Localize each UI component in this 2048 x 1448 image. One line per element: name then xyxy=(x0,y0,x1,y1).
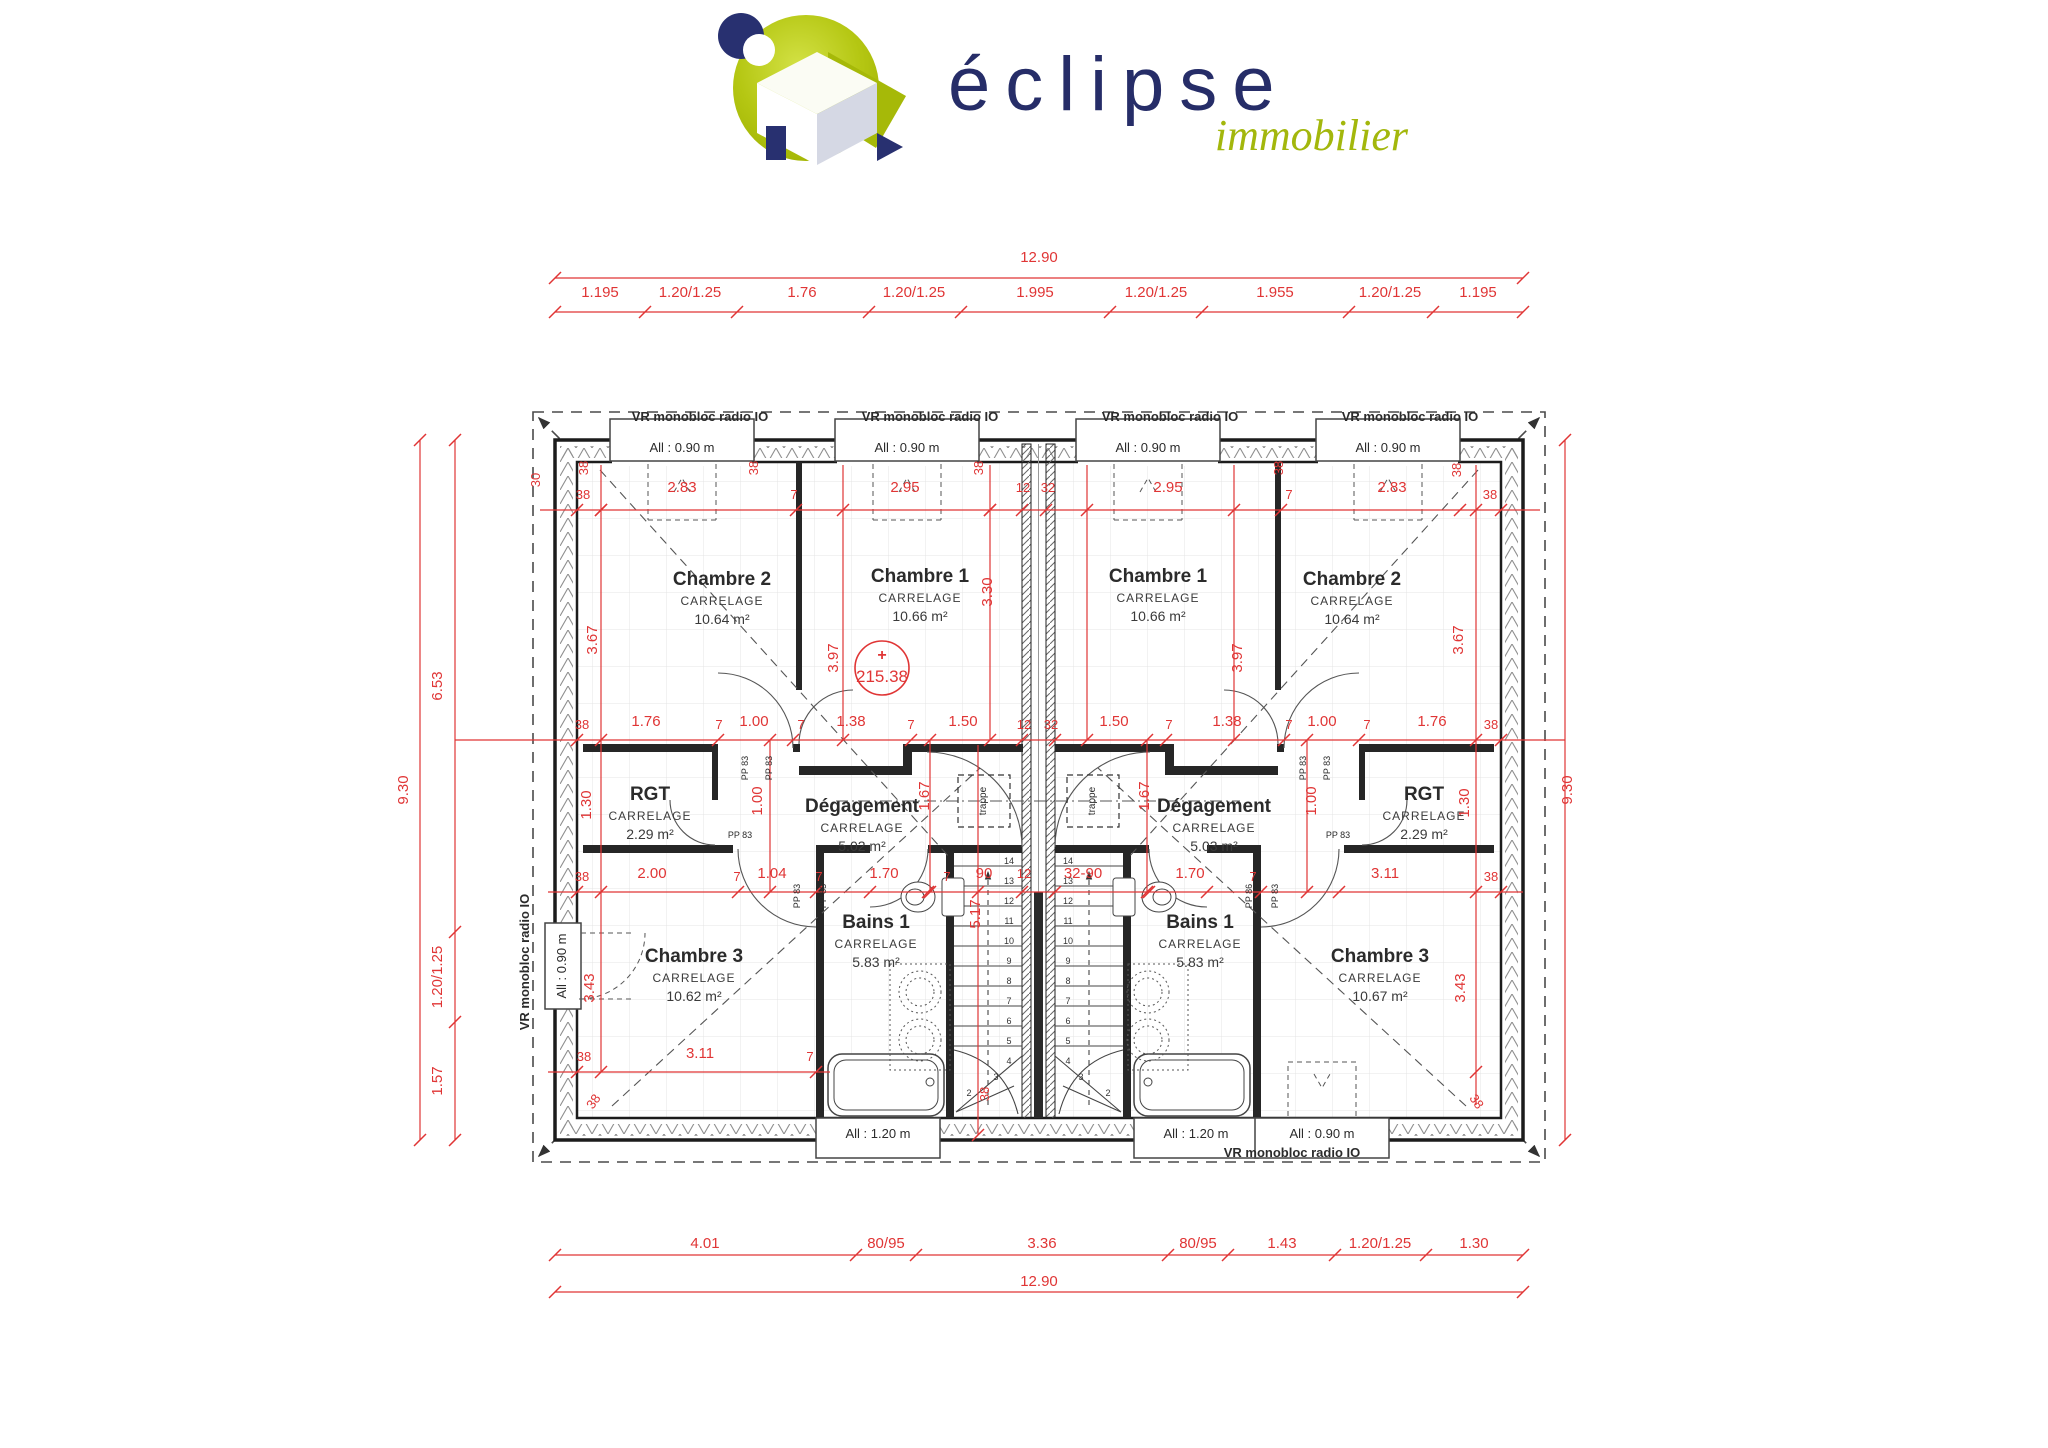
bathtub-icon xyxy=(828,1054,944,1116)
stair-step-number: 9 xyxy=(1006,956,1011,966)
room-finish: CARRELAGE xyxy=(1338,971,1421,985)
dimension-label: 3.67 xyxy=(1450,625,1467,654)
stair-step-number: 8 xyxy=(1065,976,1070,986)
window-height-label: All : 1.20 m xyxy=(845,1126,910,1141)
dimension-label: 38 xyxy=(1484,717,1498,732)
dimension-label: 3.36 xyxy=(1027,1235,1056,1252)
stair-step-number: 13 xyxy=(1063,876,1073,886)
dimension-label: 7 xyxy=(1165,717,1172,732)
stair-step-number: 9 xyxy=(1065,956,1070,966)
room-name: Bains 1 xyxy=(1166,912,1234,933)
dimension-label: 38 xyxy=(1271,461,1286,475)
stair-step-number: 4 xyxy=(1065,1056,1070,1066)
room-name: Chambre 2 xyxy=(673,569,771,590)
room-area: 10.66 m² xyxy=(892,608,948,624)
room-name: Chambre 1 xyxy=(1109,566,1208,587)
dimension-label: 12 xyxy=(1017,717,1031,732)
dimension-label: 3.30 xyxy=(979,577,996,606)
dimension-label: 3.43 xyxy=(581,973,598,1002)
room-finish: CARRELAGE xyxy=(1116,591,1199,605)
dimension-label: 2.83 xyxy=(667,479,696,496)
dimension-label: 1.43 xyxy=(1267,1235,1296,1252)
shutter-label: VR monobloc radio IO xyxy=(1224,1145,1361,1160)
dimension-label: 38 xyxy=(1484,869,1498,884)
dimension-label: 1.50 xyxy=(948,713,977,730)
dimension-label: 12 xyxy=(1016,480,1030,495)
dimension-label: 1.38 xyxy=(1212,713,1241,730)
dimension-label: 1.30 xyxy=(578,790,595,819)
hatch-label: trappe xyxy=(1087,786,1098,815)
dimension-label: 3.67 xyxy=(584,625,601,654)
dimension-label: 1.20/1.25 xyxy=(659,284,722,301)
dimension-label: 1.20/1.25 xyxy=(883,284,946,301)
floor-plan-page: éclipse immobilier xyxy=(0,0,2048,1448)
dimension-label: 38 xyxy=(1449,463,1464,477)
dimension-label: 7 xyxy=(1285,717,1292,732)
dimension-label: 30 xyxy=(528,473,543,487)
shutter-label: VR monobloc radio IO xyxy=(632,409,769,424)
door-label: PP 83 xyxy=(764,756,774,780)
stair-step-number: 10 xyxy=(1004,936,1014,946)
dimension-label: 7 xyxy=(1363,717,1370,732)
dimension-label: 32 xyxy=(1041,480,1055,495)
dimension-label: 1.20/1.25 xyxy=(1125,284,1188,301)
stair-step-number: 11 xyxy=(1004,916,1013,926)
dimension-label: 38 xyxy=(575,869,589,884)
door-label: PP 83 xyxy=(1298,756,1308,780)
logo-ball-highlight xyxy=(743,34,775,66)
room-name: Chambre 2 xyxy=(1303,569,1401,590)
door-label: PP 83 xyxy=(740,756,750,780)
dimension-label: 38 xyxy=(1483,487,1497,502)
level-marker-plus: + xyxy=(877,647,886,664)
dimension-label: 1.20/1.25 xyxy=(1349,1235,1412,1252)
stair-step-number: 3 xyxy=(993,1072,998,1082)
door-label: PP 83 xyxy=(1326,830,1350,840)
room-area: 5.02 m² xyxy=(838,838,886,854)
dimension-label: 7 xyxy=(907,717,914,732)
dimension-label: 80/95 xyxy=(1179,1235,1217,1252)
stair-step-number: 6 xyxy=(1006,1016,1011,1026)
room-finish: CARRELAGE xyxy=(820,821,903,835)
room-finish: CARRELAGE xyxy=(1172,821,1255,835)
room-area: 10.64 m² xyxy=(694,611,750,627)
stair-step-number: 10 xyxy=(1063,936,1073,946)
stair-step-number: 14 xyxy=(1063,856,1073,866)
dimension-label: 3.11 xyxy=(1371,865,1399,882)
level-marker-value: 215.38 xyxy=(856,667,908,686)
dimension-label: 7 xyxy=(733,869,740,884)
stair-step-number: 14 xyxy=(1004,856,1014,866)
window-height-label: All : 1.20 m xyxy=(1163,1126,1228,1141)
room-area: 10.67 m² xyxy=(1352,988,1408,1004)
logo: éclipse immobilier xyxy=(718,13,1409,165)
shutter-label: VR monobloc radio IO xyxy=(1102,409,1239,424)
dimension-label: 7 xyxy=(1285,487,1292,502)
dimension-label: 1.04 xyxy=(757,865,786,882)
dimension-label: 7 xyxy=(1249,869,1256,884)
dimension-label: 3.97 xyxy=(1229,643,1246,672)
dimension-label: 1.70 xyxy=(869,865,898,882)
dimension-label: 1.76 xyxy=(787,284,816,301)
window-height-label: All : 0.90 m xyxy=(649,440,714,455)
dimension-label: 7 xyxy=(815,869,822,884)
dimension-label: 2.00 xyxy=(637,865,666,882)
dimension-label: 1.76 xyxy=(631,713,660,730)
dimension-label: 38 xyxy=(977,1087,992,1101)
dimension-label: 1.00 xyxy=(1303,786,1320,815)
dimension-label: 1.57 xyxy=(429,1066,446,1095)
stair-step-number: 3 xyxy=(1078,1072,1083,1082)
dimension-label: 38 xyxy=(577,1049,591,1064)
dimension-label: 4.01 xyxy=(690,1235,719,1252)
room-area: 10.62 m² xyxy=(666,988,722,1004)
dimension-label: 1.20/1.25 xyxy=(1359,284,1422,301)
dimension-label: 32 xyxy=(1044,717,1058,732)
dimension-label: 1.76 xyxy=(1417,713,1446,730)
room-name: Dégagement xyxy=(1157,796,1272,817)
dimension-label: 2.83 xyxy=(1377,479,1406,496)
door-label: PP 83 xyxy=(728,830,752,840)
room-area: 5.03 m² xyxy=(1190,838,1238,854)
dimension-label: 80/95 xyxy=(867,1235,905,1252)
stair-step-number: 5 xyxy=(1006,1036,1011,1046)
stair-step-number: 6 xyxy=(1065,1016,1070,1026)
dimension-label: 9.30 xyxy=(1559,775,1576,804)
dimension-label: 38 xyxy=(746,461,761,475)
dimension-label: 7 xyxy=(790,487,797,502)
dimension-label: 38 xyxy=(576,487,590,502)
stair-step-number: 7 xyxy=(1065,996,1070,1006)
window-height-label: All : 0.90 m xyxy=(874,440,939,455)
room-area: 2.29 m² xyxy=(626,826,674,842)
room-finish: CARRELAGE xyxy=(1158,937,1241,951)
room-area: 5.83 m² xyxy=(1176,954,1224,970)
door-label: PP 86 xyxy=(1244,884,1254,908)
dimension-label: 1.195 xyxy=(1459,284,1497,301)
room-name: RGT xyxy=(1404,784,1445,805)
dimension-label: 1.50 xyxy=(1099,713,1128,730)
brand-tagline: immobilier xyxy=(1215,111,1409,160)
door-label: PP 83 xyxy=(1270,884,1280,908)
floor-plan-drawing: éclipse immobilier xyxy=(0,0,2048,1448)
dimension-label: 12.90 xyxy=(1020,249,1058,266)
room-name: Dégagement xyxy=(805,796,920,817)
dimension-label: 1.00 xyxy=(749,786,766,815)
dimension-label: 6.53 xyxy=(429,671,446,700)
dimension-label: 7 xyxy=(797,717,804,732)
room-name: Chambre 3 xyxy=(645,946,743,967)
dimension-label: 1.67 xyxy=(1136,781,1153,810)
dimension-label: 1.00 xyxy=(739,713,768,730)
dimension-label: 2.95 xyxy=(890,479,919,496)
shutter-label: VR monobloc radio IO xyxy=(1342,409,1479,424)
stair-step-number: 11 xyxy=(1063,916,1072,926)
stair-step-number: 7 xyxy=(1006,996,1011,1006)
dimension-label: 7 xyxy=(806,1049,813,1064)
door-label: PP 83 xyxy=(818,884,828,908)
dimension-label: 9.30 xyxy=(395,775,412,804)
door-label: PP 83 xyxy=(792,884,802,908)
window-height-label: All : 0.90 m xyxy=(1115,440,1180,455)
dimension-label: 1.70 xyxy=(1175,865,1204,882)
room-area: 2.29 m² xyxy=(1400,826,1448,842)
window-height-label: All : 0.90 m xyxy=(1355,440,1420,455)
shutter-label: VR monobloc radio IO xyxy=(517,894,532,1031)
dimension-label: 2.95 xyxy=(1153,479,1182,496)
dimension-label: 38 xyxy=(576,461,591,475)
stair-step-number: 8 xyxy=(1006,976,1011,986)
room-name: RGT xyxy=(630,784,671,805)
dimension-label: 1.995 xyxy=(1016,284,1054,301)
stair-step-number: 13 xyxy=(1004,876,1014,886)
dimension-label: 1.38 xyxy=(836,713,865,730)
room-name: Bains 1 xyxy=(842,912,910,933)
room-area: 5.83 m² xyxy=(852,954,900,970)
room-finish: CARRELAGE xyxy=(608,809,691,823)
bathtub-icon xyxy=(1134,1054,1250,1116)
room-finish: CARRELAGE xyxy=(680,594,763,608)
dimension-label: 38 xyxy=(575,717,589,732)
dimension-label: 38 xyxy=(971,461,986,475)
window-height-label: All : 0.90 m xyxy=(1289,1126,1354,1141)
stair-step-number: 5 xyxy=(1065,1036,1070,1046)
dimension-label: 1.195 xyxy=(581,284,619,301)
shutter-label: VR monobloc radio IO xyxy=(862,409,999,424)
room-name: Chambre 1 xyxy=(871,566,970,587)
dimension-label: 3.97 xyxy=(825,643,842,672)
hatch-label: trappe xyxy=(978,786,989,815)
dimension-label: 1.30 xyxy=(1459,1235,1488,1252)
room-finish: CARRELAGE xyxy=(1310,594,1393,608)
room-name: Chambre 3 xyxy=(1331,946,1429,967)
dimension-label: 1.955 xyxy=(1256,284,1294,301)
stair-step-number: 4 xyxy=(1006,1056,1011,1066)
dimension-label: 90 xyxy=(976,865,993,882)
dimension-label: 12.90 xyxy=(1020,1273,1058,1290)
party-wall xyxy=(1022,444,1055,1118)
room-finish: CARRELAGE xyxy=(1382,809,1465,823)
dimension-label: 3.43 xyxy=(1452,973,1469,1002)
dimension-label: 12 xyxy=(1017,866,1031,881)
room-finish: CARRELAGE xyxy=(834,937,917,951)
door-label: PP 83 xyxy=(1322,756,1332,780)
dimension-label: 5.17 xyxy=(967,899,984,928)
stair-step-number: 12 xyxy=(1004,896,1014,906)
room-finish: CARRELAGE xyxy=(652,971,735,985)
room-finish: CARRELAGE xyxy=(878,591,961,605)
stair-step-number: 2 xyxy=(1105,1088,1110,1098)
dimension-label: 1.20/1.25 xyxy=(429,946,446,1009)
room-area: 10.64 m² xyxy=(1324,611,1380,627)
dimension-label: 7 xyxy=(715,717,722,732)
window-height-label: All : 0.90 m xyxy=(554,933,569,998)
dimension-label: 1.00 xyxy=(1307,713,1336,730)
stair-step-number: 12 xyxy=(1063,896,1073,906)
dimension-label: 7 xyxy=(943,869,950,884)
room-area: 10.66 m² xyxy=(1130,608,1186,624)
dimension-label: 3.11 xyxy=(686,1045,714,1062)
stair-step-number: 2 xyxy=(966,1088,971,1098)
